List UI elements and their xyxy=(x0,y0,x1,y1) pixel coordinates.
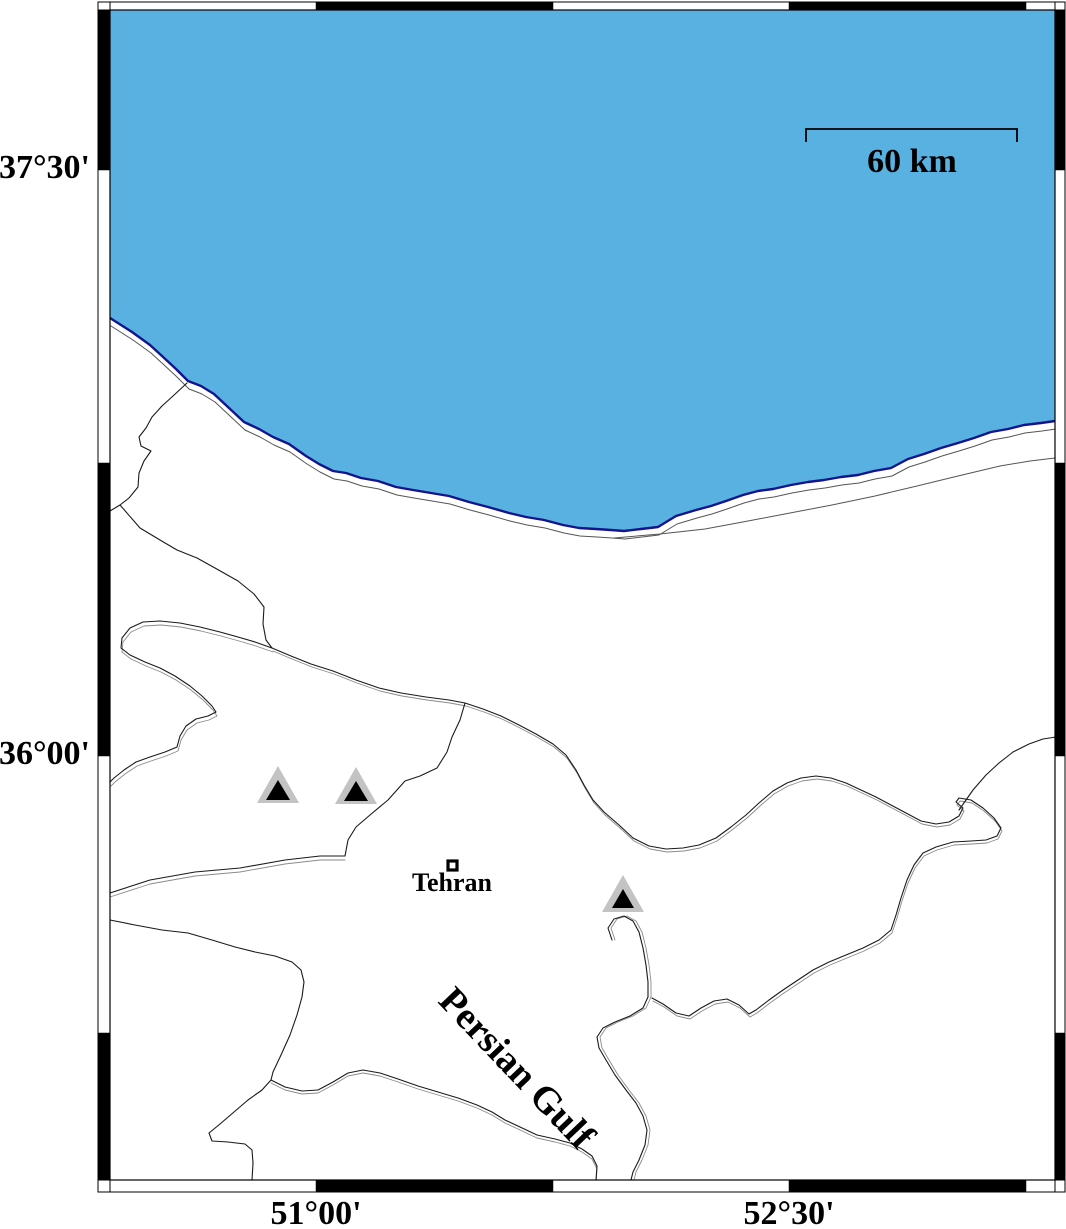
border-main-sweep xyxy=(272,648,1001,1016)
frame-segment xyxy=(98,463,110,756)
frame-segment xyxy=(1055,463,1065,756)
border-lower-left xyxy=(110,920,304,1180)
frame-segment xyxy=(98,10,110,170)
frame-corner xyxy=(98,1180,110,1192)
lat-label-36-00: 36°00' xyxy=(0,735,90,772)
frame-segment xyxy=(316,2,553,10)
border-axe-region xyxy=(110,621,272,782)
sea-polygon xyxy=(110,10,1055,531)
scale-bar-label: 60 km xyxy=(867,143,957,180)
border-left-spur xyxy=(110,505,120,511)
frame-segment xyxy=(789,1180,1026,1192)
border-right-branch xyxy=(959,737,1056,810)
frame-segment xyxy=(98,1033,110,1180)
frame-segment xyxy=(1055,10,1065,170)
city-label: Tehran xyxy=(412,868,492,897)
volcano-marker-1 xyxy=(257,766,299,803)
border-vertical-south xyxy=(597,916,648,1180)
volcano-marker-3 xyxy=(602,875,644,912)
frame-corner xyxy=(1055,1180,1065,1192)
sea-name-label: Persian Gulf xyxy=(430,979,603,1158)
lon-label-52-30: 52°30' xyxy=(743,1195,834,1229)
border-shadow xyxy=(600,916,651,1180)
frame-corner xyxy=(1055,2,1065,10)
lat-label-37-30: 37°30' xyxy=(0,149,90,186)
frame-corner xyxy=(98,2,110,10)
volcano-marker-2 xyxy=(335,767,377,804)
frame-segment xyxy=(1055,1033,1065,1180)
border-shadow xyxy=(110,860,345,897)
border-shadow xyxy=(273,651,1002,1019)
frame-segment xyxy=(789,2,1026,10)
frame-segment xyxy=(316,1180,553,1192)
map-canvas: Tehran Persian Gulf 60 km 37°30' 36°0 xyxy=(0,0,1066,1229)
map-figure: Tehran Persian Gulf 60 km 37°30' 36°0 xyxy=(0,0,1066,1229)
lon-label-51-00: 51°00' xyxy=(270,1195,361,1229)
